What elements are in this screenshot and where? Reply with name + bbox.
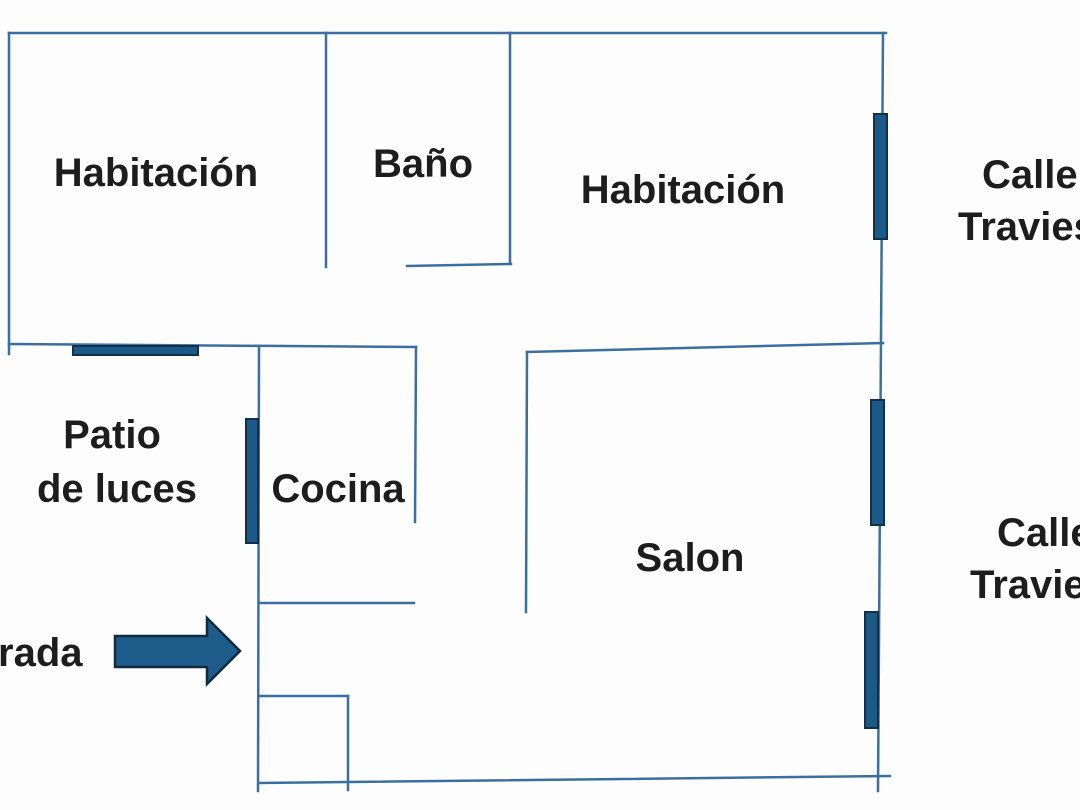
window-bedroom-left-icon <box>73 346 198 355</box>
room-label-bathroom: Baño <box>373 142 473 186</box>
entrance-arrow-icon <box>115 618 240 684</box>
wall-living-top <box>527 343 883 352</box>
room-label-living-room: Salon <box>636 536 745 580</box>
street-bottom-label-line2: Travie <box>970 563 1080 607</box>
wall-kitchen-right <box>415 347 416 522</box>
room-label-patio-line1: Patio <box>63 413 161 457</box>
wall-bottom <box>259 776 890 783</box>
room-label-bedroom-left: Habitación <box>54 151 258 195</box>
wall-bathroom-bottom <box>407 264 511 266</box>
street-bottom-label-line1: Calle <box>997 511 1080 555</box>
entrance-label: rada <box>0 631 83 675</box>
floor-plan-canvas: Habitación Baño Habitación Patio de luce… <box>0 0 1080 810</box>
street-top-label-line1: Calle <box>982 153 1078 197</box>
window-bedroom-right-icon <box>874 114 887 239</box>
window-living-upper-icon <box>871 400 884 525</box>
room-label-patio-line2: de luces <box>37 467 197 511</box>
wall-living-left <box>526 352 527 612</box>
window-living-lower-icon <box>865 612 878 728</box>
wall-kitchen-left <box>258 346 259 791</box>
window-kitchen-icon <box>246 419 258 543</box>
labels: Habitación Baño Habitación Patio de luce… <box>0 142 1080 675</box>
room-label-bedroom-right: Habitación <box>581 168 785 212</box>
street-top-label-line2: Travies <box>958 205 1080 249</box>
floor-plan: Habitación Baño Habitación Patio de luce… <box>0 0 1080 810</box>
wall-mid-horizontal <box>9 344 416 347</box>
room-label-kitchen: Cocina <box>271 467 405 511</box>
